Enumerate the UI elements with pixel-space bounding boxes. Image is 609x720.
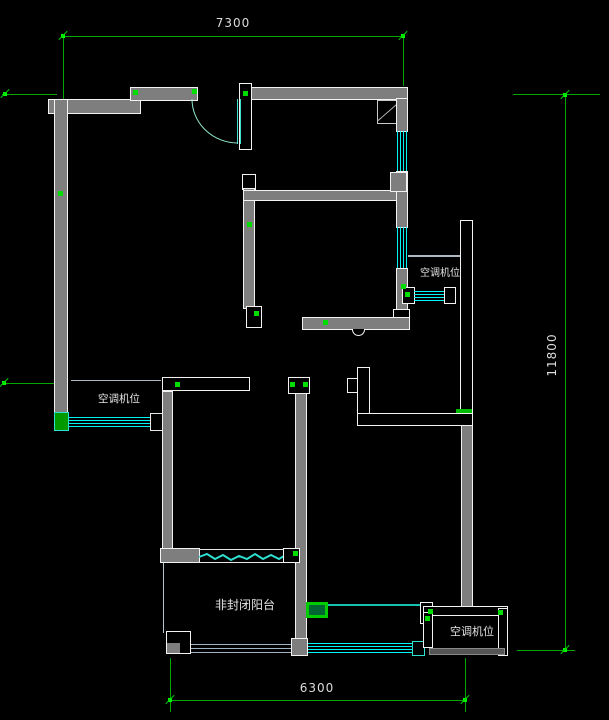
- joint-marker: [192, 89, 197, 94]
- dimension-ext-right-top: [513, 94, 600, 95]
- joint-marker: [498, 610, 503, 615]
- dimension-marker: [560, 90, 570, 100]
- balcony-label: 非封闭阳台: [209, 596, 281, 613]
- wall-hall-vertical: [357, 367, 370, 417]
- window-ac-bay-left: [68, 417, 152, 429]
- ac-niche-top-wall: [423, 606, 508, 616]
- wall-hall-horizontal: [357, 413, 473, 426]
- window-right-lower: [397, 227, 408, 269]
- ac-niche-label: 空调机位: [440, 623, 504, 639]
- ac-bay-right-top-line: [408, 255, 462, 257]
- dimension-ext-top-right: [403, 36, 404, 86]
- highlighted-rect: [306, 602, 328, 618]
- dimension-marker: [0, 89, 10, 99]
- wall-right-thin: [460, 220, 473, 420]
- joint-marker: [405, 292, 410, 297]
- window-ac-bay-right: [414, 291, 445, 303]
- dimension-line-top: [63, 36, 404, 37]
- window-right-upper: [397, 131, 408, 172]
- window-lower-right: [308, 643, 414, 655]
- joint-marker: [58, 191, 63, 196]
- joint-marker: [323, 320, 328, 325]
- dimension-marker: [398, 31, 408, 41]
- joint-marker: [303, 382, 308, 387]
- door-threshold-notch: [352, 329, 365, 336]
- joint-marker: [425, 616, 430, 621]
- dimension-label-top: 7300: [203, 16, 263, 30]
- balcony-corner-fill: [167, 643, 180, 653]
- dimension-line-bottom: [170, 700, 466, 701]
- ac-niche-bottom-strip: [429, 648, 505, 655]
- wall-top-right: [251, 87, 408, 100]
- dimension-line-right: [565, 95, 566, 650]
- dimension-marker: [560, 645, 570, 655]
- joint-marker: [247, 222, 252, 227]
- joint-marker: [290, 382, 295, 387]
- joint-marker: [428, 609, 433, 614]
- ac-bay-left-label: 空调机位: [93, 391, 145, 406]
- ac-bay-left-bracket-left: [54, 412, 69, 431]
- wall-right-lower: [461, 423, 473, 610]
- ac-bay-left-top-line: [71, 380, 161, 381]
- dimension-marker: [460, 695, 470, 705]
- floorplan-canvas[interactable]: 7300 11800 6300 空调机位: [0, 0, 609, 720]
- window-bedroom2-glazing: [199, 552, 284, 562]
- dimension-ext-left-upper: [2, 94, 57, 95]
- wall-bedroom2-left: [162, 391, 173, 563]
- dimension-label-right: 11800: [545, 325, 559, 385]
- joint-marker: [254, 311, 259, 316]
- ac-bay-right-label: 空调机位: [415, 264, 465, 279]
- joint-marker: [133, 90, 138, 95]
- joint-marker: [401, 284, 406, 289]
- wall-central-top: [243, 190, 397, 201]
- wall-right-upper-seg1: [396, 98, 408, 132]
- dimension-label-bottom: 6300: [287, 681, 347, 695]
- wall-central-left: [243, 188, 255, 309]
- dimension-marker: [165, 695, 175, 705]
- dimension-marker: [58, 31, 68, 41]
- joint-marker: [243, 91, 248, 96]
- wall-central-top-connector: [390, 172, 407, 192]
- wall-left-exterior: [54, 99, 68, 413]
- joint-marker: [293, 551, 298, 556]
- dimension-ext-left-lower: [2, 383, 57, 384]
- joint-marker: [175, 382, 180, 387]
- window-bedroom2-frame: [199, 549, 284, 563]
- wall-central-left-post-bottom: [246, 306, 262, 328]
- wall-bedroom2-bottom-left: [160, 548, 200, 563]
- ac-bay-right-post-right: [444, 287, 456, 304]
- balcony-rail-left: [163, 563, 165, 633]
- dimension-ext-top-left: [63, 36, 64, 100]
- wall-lr-corner: [291, 638, 308, 656]
- dimension-marker: [0, 378, 9, 388]
